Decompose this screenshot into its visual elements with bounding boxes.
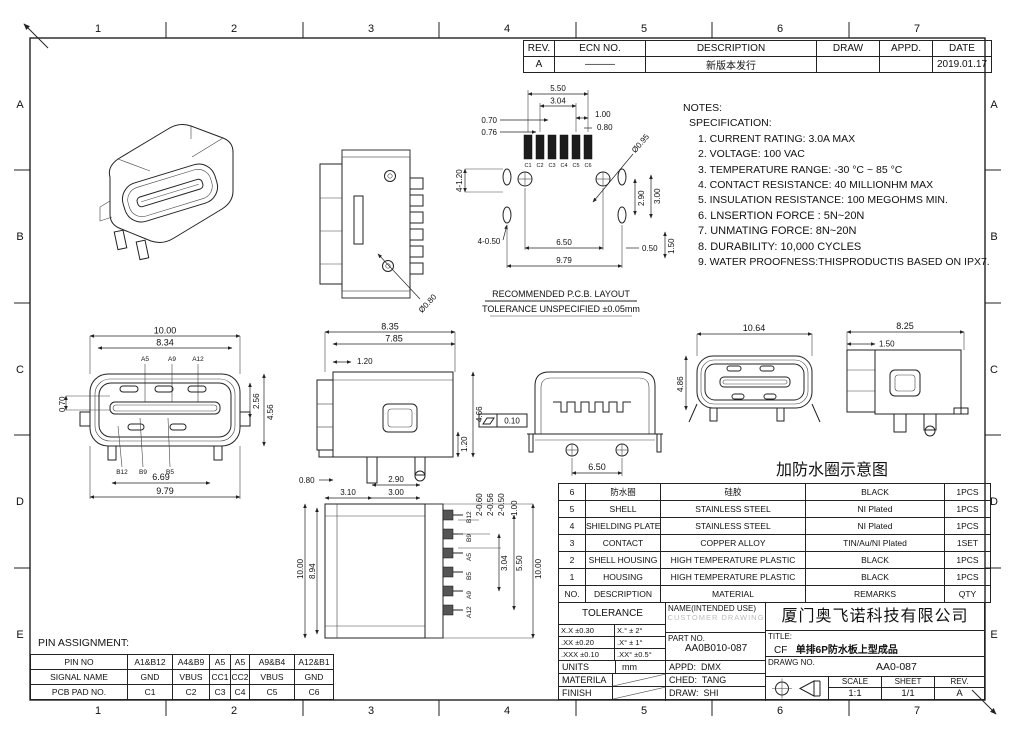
zone-row: E [16, 629, 23, 641]
pad-label: C5 [572, 163, 579, 169]
pin-cell: C6 [295, 685, 334, 700]
zone-col: 5 [641, 23, 647, 35]
bom-cell: SHIELDING PLATE [586, 518, 661, 535]
pin-label: A5 [466, 553, 473, 561]
dim-label: 4.86 [676, 376, 685, 392]
tolerance-row: X.X ±0.30 [559, 625, 615, 636]
name-watermark: CUSTOMER DRAWING [666, 613, 766, 622]
note-item: 5. INSULATION RESISTANCE: 100 MEGOHMS MI… [683, 193, 983, 208]
bom-header: REMARKS [806, 586, 945, 603]
pcb-layout-drawing: C1 C2 C3 C4 C5 C6 5.50 3.04 1.00 0.80 0.… [443, 80, 675, 320]
zone-row: B [990, 231, 997, 243]
zone-col: 1 [95, 23, 101, 35]
dim-label: 5.50 [550, 84, 566, 93]
bom-cell: BLACK [806, 552, 945, 569]
waterproof-view-drawing: 10.64 4.86 8.25 1.50 加防水圈示意图 [672, 318, 990, 488]
pin-cell: A5 [231, 655, 250, 670]
waterproof-caption: 加防水圈示意图 [776, 460, 888, 479]
bottom-view-drawing: 10.00 8.94 B12 B9 A5 B5 A9 A12 2-0 [293, 476, 545, 656]
corner-mark-topleft [24, 24, 48, 48]
finish-label: FINISH [559, 687, 613, 700]
rev-cell [880, 57, 933, 73]
note-item: 1. CURRENT RATING: 3.0A MAX [683, 132, 983, 147]
zone-row: B [16, 231, 23, 243]
bom-header: NO. [559, 586, 586, 603]
title-block: TOLERANCE X.X ±0.30 X.° ± 2° .XX ±0.20 .… [558, 602, 985, 700]
bom-cell: 防水圈 [586, 484, 661, 501]
dim-label: 2.90 [637, 190, 646, 206]
pin-label: A9 [168, 356, 176, 363]
dim-label: 1.00 [510, 500, 519, 516]
pin-label: B12 [116, 469, 128, 476]
dim-label: 6.50 [588, 462, 606, 472]
appd-value: DMX [701, 662, 721, 672]
finish-blank [613, 687, 666, 700]
bom-cell: HIGH TEMPERATURE PLASTIC [661, 552, 806, 569]
bom-cell: 4 [559, 518, 586, 535]
notes-block: NOTES: SPECIFICATION: 1. CURRENT RATING:… [683, 101, 983, 270]
dim-label: 4-1.20 [455, 169, 464, 192]
drawing-info-section: 厦门奥飞诺科技有限公司 TITLE: CF 单排6P防水板上型成品 DRAWG … [766, 603, 984, 701]
scale-value: 1:1 [829, 688, 881, 700]
zone-col: 4 [504, 705, 510, 717]
engineering-drawing-sheet: 1 2 3 4 5 6 7 1 2 3 4 5 6 7 A B C D E A … [0, 0, 1017, 738]
ched-label: CHED: [669, 675, 697, 685]
bom-cell: 1PCS [945, 569, 991, 586]
dim-label: 4-0.50 [478, 237, 501, 246]
bom-cell: 6 [559, 484, 586, 501]
units-value: mm [616, 661, 666, 673]
bom-cell: SHELL HOUSING [586, 552, 661, 569]
dim-label: 7.85 [385, 334, 403, 344]
drawg-no-value: AA0-087 [876, 661, 917, 673]
tolerance-row: .X° ± 1° [615, 637, 666, 648]
rev-cell: 新版本发行 [646, 57, 817, 73]
bom-cell: STAINLESS STEEL [661, 501, 806, 518]
tolerance-row: .XXX ±0.10 [559, 649, 615, 660]
bom-cell: NI Plated [806, 501, 945, 518]
dim-label: 2-0.56 [486, 493, 495, 516]
dim-label: 0.70 [481, 116, 497, 125]
dim-label: 0.50 [642, 244, 658, 253]
dim-label: 8.94 [308, 563, 317, 579]
bottom-pads [443, 510, 463, 615]
dim-label: 6.69 [152, 472, 170, 482]
dim-label: 2.56 [252, 393, 261, 409]
pin-label: B5 [466, 572, 473, 580]
rev-header: ECN NO. [555, 41, 646, 57]
note-item: 4. CONTACT RESISTANCE: 40 MILLIONHM MAX [683, 178, 983, 193]
zone-col: 3 [368, 705, 374, 717]
bom-cell: BLACK [806, 569, 945, 586]
rev-cell: A [524, 57, 555, 73]
drawg-no-label: DRAWG NO. [768, 658, 815, 667]
dim-label: 10.64 [743, 323, 766, 333]
zone-row: A [16, 99, 24, 111]
bom-cell: 3 [559, 535, 586, 552]
sheet-value: 1/1 [882, 688, 934, 700]
rev-value: A [935, 688, 984, 700]
rev-cell [817, 57, 880, 73]
zone-col: 7 [914, 23, 920, 35]
tolerance-row: .XX ±0.20 [559, 637, 615, 648]
pin-label: A5 [141, 356, 149, 363]
rev-header: APPD. [880, 41, 933, 57]
notes-title: NOTES: [683, 101, 983, 116]
dim-label: 2-0.50 [497, 493, 506, 516]
pin-cell: C2 [173, 685, 210, 700]
pin-label: A9 [466, 591, 473, 599]
dim-label: 1.50 [879, 340, 895, 349]
pin-cell: A12&B1 [295, 655, 334, 670]
sheet-label: SHEET [882, 677, 934, 688]
note-item: 9. WATER PROOFNESS:THISPRODUCTIS BASED O… [683, 255, 983, 270]
bom-header: DESCRIPTION [586, 586, 661, 603]
pin-cell: A5 [210, 655, 231, 670]
pin-cell: GND [295, 670, 334, 685]
rev-cell: ——— [555, 57, 646, 73]
projection-symbol [766, 677, 829, 700]
bom-cell: 1PCS [945, 501, 991, 518]
dim-label: 2-0.60 [475, 493, 484, 516]
rev-label: REV. [935, 677, 984, 688]
bom-cell: HIGH TEMPERATURE PLASTIC [661, 569, 806, 586]
contact-comb [553, 402, 631, 412]
pin-cell: C5 [250, 685, 295, 700]
bom-cell: BLACK [806, 484, 945, 501]
bom-cell: HOUSING [586, 569, 661, 586]
material-blank [613, 674, 666, 686]
material-label: MATERILA [559, 674, 613, 686]
bom-table: 6 防水圈 硅胶 BLACK 1PCS 5 SHELL STAINLESS ST… [558, 483, 991, 603]
pin-assignment-title: PIN ASSIGNMENT: [38, 637, 129, 649]
bom-cell: 1PCS [945, 552, 991, 569]
dim-label: 6.50 [556, 238, 572, 247]
signoff-section: NAME(INTENDED USE) CUSTOMER DRAWING PART… [666, 603, 766, 701]
bom-cell: 1PCS [945, 484, 991, 501]
zone-col: 7 [914, 705, 920, 717]
dim-label: 8.25 [896, 321, 914, 331]
dim-label: 9.79 [556, 256, 572, 265]
dim-label: 3.04 [550, 97, 566, 106]
zone-row: E [990, 629, 997, 641]
pin-label: B12 [466, 511, 473, 523]
note-item: 2. VOLTAGE: 100 VAC [683, 147, 983, 162]
title-label: TITLE: [766, 631, 984, 641]
dim-label: 1.20 [460, 436, 469, 452]
pin-cell: A1&B12 [128, 655, 173, 670]
top-view-drawing: Ø0.80 [308, 136, 446, 314]
zone-row: C [990, 364, 998, 376]
rev-header: REV. [524, 41, 555, 57]
pin-cell: VBUS [250, 670, 295, 685]
pin-cell: GND [128, 670, 173, 685]
pin-cell: VBUS [173, 670, 210, 685]
pin-cell: CC1 [210, 670, 231, 685]
pin-label: A12 [192, 356, 204, 363]
pcb-caption: RECOMMENDED P.C.B. LAYOUT [492, 289, 630, 299]
bom-cell: 1 [559, 569, 586, 586]
rev-header: DRAW [817, 41, 880, 57]
zone-col: 2 [231, 705, 237, 717]
company-name: 厦门奥飞诺科技有限公司 [766, 603, 984, 631]
name-label: NAME(INTENDED USE) [666, 603, 766, 613]
bom-cell: 2 [559, 552, 586, 569]
bom-cell: COPPER ALLOY [661, 535, 806, 552]
rev-header: DESCRIPTION [646, 41, 817, 57]
appd-label: APPD: [669, 662, 696, 672]
dim-label: 1.50 [667, 238, 675, 254]
tolerance-title: TOLERANCE [559, 603, 666, 625]
tolerance-section: TOLERANCE X.X ±0.30 X.° ± 2° .XX ±0.20 .… [559, 603, 666, 701]
bom-cell: 5 [559, 501, 586, 518]
bom-cell: 硅胶 [661, 484, 806, 501]
zone-col: 2 [231, 23, 237, 35]
zone-row: D [990, 496, 998, 508]
bom-header: QTY [945, 586, 991, 603]
dim-label: Ø0.95 [630, 132, 651, 155]
note-item: 6. LNSERTION FORCE : 5N~20N [683, 209, 983, 224]
units-label: UNITS [559, 661, 616, 673]
zone-row: A [990, 99, 998, 111]
dim-label: 1.00 [595, 110, 611, 119]
dim-label: 8.34 [156, 338, 174, 348]
part-no-label: PART NO. [666, 633, 766, 643]
pin-assignment-table: PIN NO A1&B12 A4&B9 A5 A5 A9&B4 A12&B1 S… [30, 654, 334, 700]
draw-label: DRAW: [669, 688, 699, 698]
dim-label: 4.56 [266, 404, 275, 420]
dim-label: 10.00 [154, 326, 177, 336]
dim-label: Ø0.80 [417, 292, 439, 314]
note-item: 8. DURABILITY: 10,000 CYCLES [683, 240, 983, 255]
dim-label: 10.00 [296, 558, 305, 579]
scale-label: SCALE [829, 677, 881, 688]
note-item: 3. TEMPERATURE RANGE: -30 °C ~ 85 °C [683, 163, 983, 178]
pad-label: C4 [560, 163, 567, 169]
zone-col: 6 [777, 23, 783, 35]
pin-row-header: PCB PAD NO. [31, 685, 128, 700]
tolerance-row: .XX° ±0.5° [615, 649, 666, 660]
bom-cell: CONTACT [586, 535, 661, 552]
draw-value: SHI [704, 688, 719, 698]
pad-label: C2 [536, 163, 543, 169]
zone-row: D [16, 496, 24, 508]
bom-cell: 1PCS [945, 518, 991, 535]
dim-label: 1.20 [357, 357, 373, 366]
pad-label: C6 [584, 163, 591, 169]
pcb-pads [524, 135, 592, 159]
pin-label: B9 [466, 534, 473, 542]
dim-label: 3.00 [653, 188, 662, 204]
bom-cell: TIN/Au/NI Plated [806, 535, 945, 552]
zone-col: 6 [777, 705, 783, 717]
pin-cell: C3 [210, 685, 231, 700]
dim-label: 8.35 [381, 322, 399, 332]
zone-col: 4 [504, 23, 510, 35]
part-no-value: AA0B010-087 [666, 643, 766, 654]
dim-label: 0.80 [597, 123, 613, 132]
bom-cell: STAINLESS STEEL [661, 518, 806, 535]
tolerance-row: X.° ± 2° [615, 625, 666, 636]
dim-label: 10.00 [534, 558, 543, 579]
notes-subtitle: SPECIFICATION: [683, 116, 983, 131]
dim-label: 5.50 [515, 555, 524, 571]
revision-table: REV. ECN NO. DESCRIPTION DRAW APPD. DATE… [523, 40, 992, 73]
pin-label: B9 [139, 469, 147, 476]
flatness-value: 0.10 [504, 417, 520, 426]
bom-header: MATERIAL [661, 586, 806, 603]
isometric-view-drawing [50, 105, 250, 280]
note-item: 7. UNMATING FORCE: 8N~20N [683, 224, 983, 239]
flatness-symbol: 0.10 [479, 414, 527, 427]
pin-row-header: SIGNAL NAME [31, 670, 128, 685]
zone-col: 3 [368, 23, 374, 35]
title-cf: CF [774, 645, 787, 656]
bom-cell: SHELL [586, 501, 661, 518]
pin-cell: A4&B9 [173, 655, 210, 670]
pad-label: C1 [524, 163, 531, 169]
pin-row-header: PIN NO [31, 655, 128, 670]
zone-col: 1 [95, 705, 101, 717]
dim-label: 9.79 [156, 486, 174, 496]
pcb-tolerance-caption: TOLERANCE UNSPECIFIED ±0.05mm [482, 304, 640, 314]
rev-header: DATE [933, 41, 992, 57]
dim-label: 3.04 [500, 555, 509, 571]
bom-cell: NI Plated [806, 518, 945, 535]
dim-label: 0.76 [481, 128, 497, 137]
front-view-drawing: 10.00 8.34 A5 A9 A12 0.70 2.56 4.56 B12 … [50, 326, 285, 506]
rear-view-drawing: 0.10 6.50 [477, 362, 672, 484]
pin-label: A12 [466, 606, 473, 618]
pad-label: C3 [548, 163, 555, 169]
pin-cell: C1 [128, 685, 173, 700]
zone-col: 5 [641, 705, 647, 717]
pin-cell: A9&B4 [250, 655, 295, 670]
title-text: 单排6P防水板上型成品 [796, 645, 898, 656]
pin-cell: CC2 [231, 670, 250, 685]
ched-value: TANG [702, 675, 726, 685]
pin-cell: C4 [231, 685, 250, 700]
bom-cell: 1SET [945, 535, 991, 552]
zone-row: C [16, 364, 24, 376]
rev-cell: 2019.01.17 [933, 57, 992, 73]
